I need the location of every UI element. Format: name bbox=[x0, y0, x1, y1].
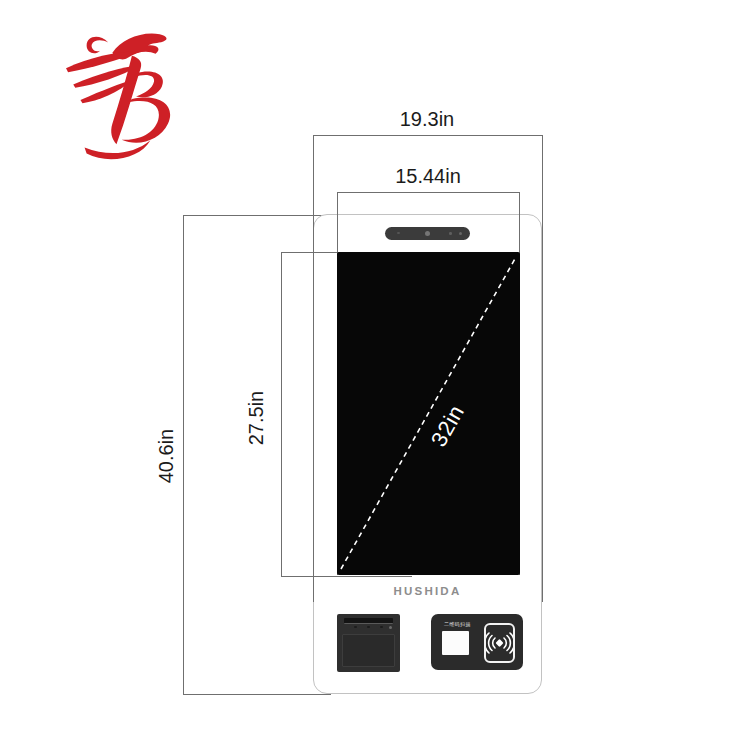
camera-lens-icon bbox=[425, 231, 430, 236]
outer-width-label: 19.3in bbox=[313, 107, 541, 131]
panel-height-label: 27.5in bbox=[244, 378, 268, 458]
printer-screw-dot bbox=[380, 626, 383, 629]
printer-screw-dot bbox=[367, 626, 370, 629]
kiosk-screen: 32in bbox=[337, 252, 520, 575]
receipt-printer bbox=[337, 614, 400, 673]
panel-width-label: 15.44in bbox=[337, 164, 519, 188]
camera-bar bbox=[385, 227, 470, 240]
payment-module: 二维码扫描 bbox=[431, 614, 523, 670]
qr-scanner-window bbox=[442, 631, 469, 655]
brand-name: HUSHIDA bbox=[313, 585, 542, 597]
printer-screw-dot bbox=[354, 626, 357, 629]
contactless-payment-icon bbox=[484, 623, 515, 663]
camera-mic-dot bbox=[397, 232, 400, 235]
dragon-logo bbox=[60, 28, 175, 168]
total-height-label: 40.6in bbox=[154, 416, 178, 496]
diagonal-dimension-line bbox=[337, 252, 519, 574]
camera-led-dot bbox=[459, 232, 462, 235]
paper-slot bbox=[344, 618, 393, 624]
camera-sensor-dot bbox=[449, 232, 452, 235]
qr-scanner-label: 二维码扫描 bbox=[444, 621, 471, 627]
printer-front-cover bbox=[342, 634, 395, 667]
printer-led-dot bbox=[389, 626, 392, 629]
product-dimension-diagram: 32in HUSHIDA 二维码扫描 bbox=[0, 0, 750, 750]
